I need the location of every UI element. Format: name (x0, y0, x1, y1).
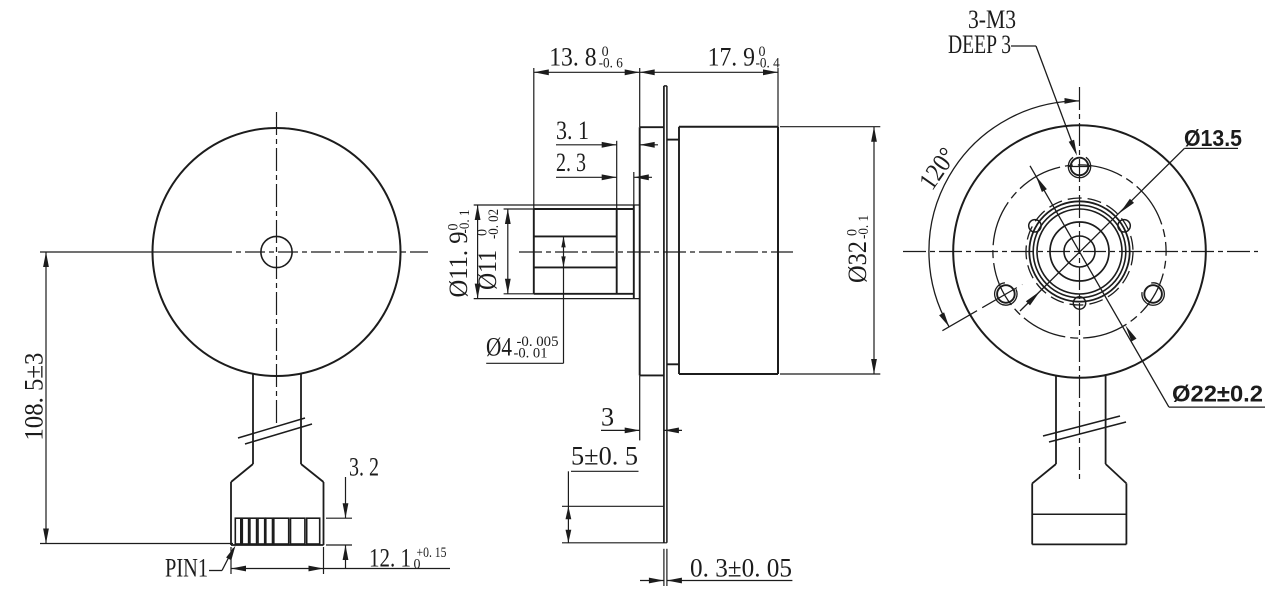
svg-text:Ø11: Ø11 (473, 250, 502, 290)
svg-text:108. 5±3: 108. 5±3 (20, 353, 49, 441)
svg-text:13. 8: 13. 8 (549, 42, 596, 71)
svg-text:Ø22±0.2: Ø22±0.2 (1172, 381, 1263, 407)
svg-text:-0. 02: -0. 02 (486, 209, 502, 239)
svg-text:DEEP 3: DEEP 3 (948, 30, 1011, 59)
svg-text:-0. 1: -0. 1 (457, 210, 473, 234)
svg-text:Ø13.5: Ø13.5 (1184, 125, 1242, 151)
svg-text:12. 1: 12. 1 (369, 544, 411, 573)
svg-text:120°: 120° (913, 142, 962, 195)
svg-text:Ø32: Ø32 (843, 241, 872, 283)
svg-text:PIN1: PIN1 (165, 554, 208, 583)
svg-text:17. 9: 17. 9 (708, 42, 755, 71)
svg-text:3: 3 (601, 403, 614, 432)
svg-text:-0. 4: -0. 4 (756, 56, 781, 72)
svg-text:2. 3: 2. 3 (556, 148, 586, 177)
svg-text:Ø11. 9: Ø11. 9 (444, 232, 473, 298)
svg-text:3. 1: 3. 1 (556, 116, 589, 145)
svg-text:-0. 01: -0. 01 (514, 346, 548, 362)
svg-text:0: 0 (414, 557, 421, 573)
svg-text:+0. 15: +0. 15 (417, 545, 447, 561)
svg-text:3. 2: 3. 2 (349, 453, 379, 482)
svg-text:Ø4: Ø4 (486, 333, 512, 362)
svg-text:-0. 6: -0. 6 (599, 56, 623, 72)
svg-text:5±0. 5: 5±0. 5 (571, 442, 638, 471)
svg-text:0. 3±0. 05: 0. 3±0. 05 (690, 554, 792, 583)
svg-text:-0. 1: -0. 1 (856, 215, 872, 239)
